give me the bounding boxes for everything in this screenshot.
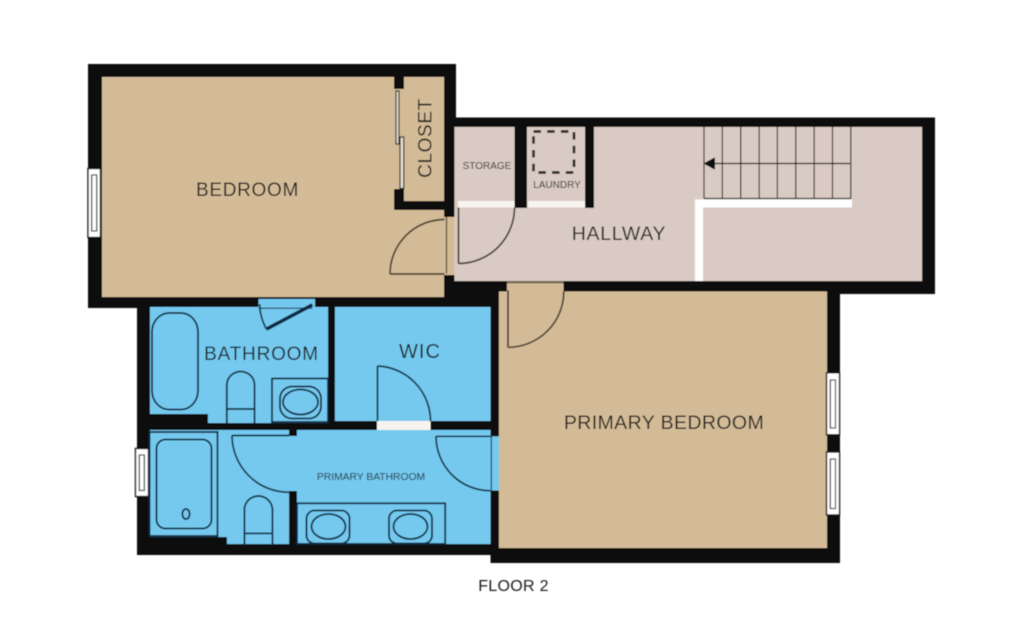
svg-text:PRIMARY BATHROOM: PRIMARY BATHROOM	[317, 472, 425, 483]
svg-text:STORAGE: STORAGE	[463, 161, 512, 172]
svg-text:LAUNDRY: LAUNDRY	[533, 180, 581, 191]
svg-text:WIC: WIC	[399, 341, 441, 363]
svg-text:FLOOR 2: FLOOR 2	[478, 578, 549, 595]
svg-text:PRIMARY BEDROOM: PRIMARY BEDROOM	[564, 412, 764, 434]
svg-text:CLOSET: CLOSET	[416, 98, 437, 178]
svg-text:BEDROOM: BEDROOM	[196, 180, 299, 201]
svg-text:BATHROOM: BATHROOM	[204, 344, 319, 365]
svg-text:HALLWAY: HALLWAY	[572, 223, 666, 245]
